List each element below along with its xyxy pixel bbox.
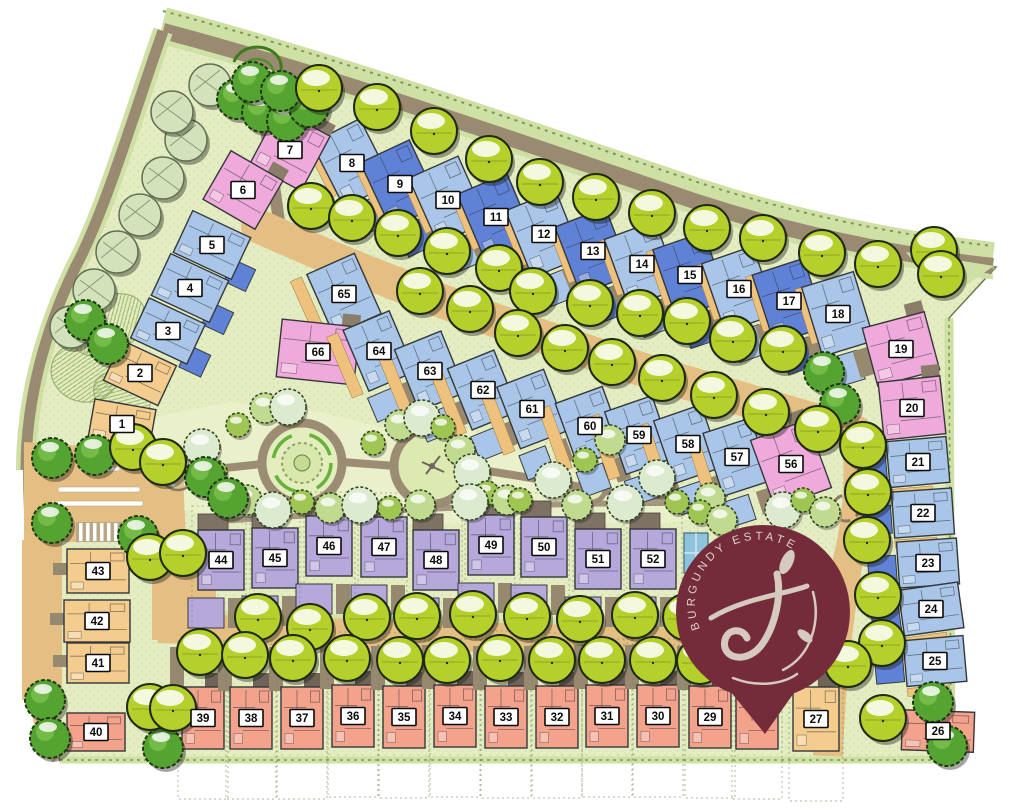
unit-number-43: 43 <box>86 563 110 580</box>
unit-number-17: 17 <box>777 293 801 310</box>
unit-number-65: 65 <box>332 286 356 303</box>
unit-number-30: 30 <box>646 708 670 725</box>
unit-number-27: 27 <box>804 711 828 728</box>
unit-number-14: 14 <box>630 256 654 273</box>
unit-number-35: 35 <box>392 709 416 726</box>
svg-text:14: 14 <box>636 259 649 271</box>
unit-number-36: 36 <box>341 708 365 725</box>
svg-text:33: 33 <box>500 712 513 724</box>
unit-number-21: 21 <box>906 454 930 471</box>
unit-number-16: 16 <box>727 281 751 298</box>
svg-text:38: 38 <box>245 713 258 725</box>
unit-number-31: 31 <box>595 708 619 725</box>
svg-text:30: 30 <box>652 711 665 723</box>
svg-text:18: 18 <box>832 309 845 321</box>
svg-text:52: 52 <box>647 554 660 566</box>
unit-number-7: 7 <box>278 142 302 159</box>
svg-text:47: 47 <box>378 542 391 554</box>
svg-text:57: 57 <box>731 452 744 464</box>
svg-text:29: 29 <box>704 712 717 724</box>
unit-number-1: 1 <box>110 416 134 433</box>
unit-number-11: 11 <box>484 209 508 226</box>
unit-number-34: 34 <box>443 708 467 725</box>
svg-text:64: 64 <box>373 346 386 358</box>
svg-text:6: 6 <box>240 185 246 197</box>
svg-text:39: 39 <box>197 713 210 725</box>
svg-text:10: 10 <box>442 195 455 207</box>
svg-text:13: 13 <box>587 246 600 258</box>
unit-number-5: 5 <box>200 237 224 254</box>
svg-text:12: 12 <box>538 229 551 241</box>
svg-text:15: 15 <box>684 270 697 282</box>
svg-text:36: 36 <box>347 711 360 723</box>
svg-text:26: 26 <box>932 726 945 738</box>
unit-number-6: 6 <box>231 182 255 199</box>
svg-text:32: 32 <box>551 712 564 724</box>
svg-text:40: 40 <box>90 727 103 739</box>
svg-text:46: 46 <box>323 541 336 553</box>
unit-number-19: 19 <box>889 341 913 358</box>
svg-text:42: 42 <box>91 616 104 628</box>
site-plan: 8910111213141516171876543216566646362616… <box>0 0 1013 810</box>
svg-text:34: 34 <box>449 711 462 723</box>
unit-number-56: 56 <box>779 456 803 473</box>
unit-number-12: 12 <box>532 226 556 243</box>
unit-number-8: 8 <box>340 155 364 172</box>
unit-number-32: 32 <box>545 709 569 726</box>
unit-number-13: 13 <box>581 243 605 260</box>
unit-number-42: 42 <box>85 613 109 630</box>
unit-number-9: 9 <box>388 176 412 193</box>
unit-number-66: 66 <box>306 344 330 361</box>
unit-number-38: 38 <box>239 710 263 727</box>
unit-number-26: 26 <box>926 723 950 740</box>
unit-number-61: 61 <box>520 401 544 418</box>
unit-number-60: 60 <box>578 418 602 435</box>
unit-number-22: 22 <box>911 505 935 522</box>
svg-text:56: 56 <box>785 459 798 471</box>
svg-text:44: 44 <box>215 555 228 567</box>
road-marking <box>55 501 143 506</box>
svg-text:17: 17 <box>783 296 796 308</box>
logo-pin-circle <box>676 525 850 699</box>
unit-number-10: 10 <box>436 192 460 209</box>
unit-number-49: 49 <box>479 537 503 554</box>
svg-text:3: 3 <box>165 326 171 338</box>
unit-number-24: 24 <box>919 601 943 618</box>
road-marking <box>58 487 140 492</box>
svg-text:37: 37 <box>296 713 309 725</box>
site-plan-svg: 8910111213141516171876543216566646362616… <box>0 0 1013 810</box>
unit-number-2: 2 <box>128 365 152 382</box>
svg-text:60: 60 <box>584 421 597 433</box>
svg-text:49: 49 <box>485 540 498 552</box>
svg-text:23: 23 <box>922 558 935 570</box>
svg-text:31: 31 <box>601 711 614 723</box>
unit-number-58: 58 <box>676 436 700 453</box>
unit-number-51: 51 <box>586 551 610 568</box>
svg-text:5: 5 <box>209 240 216 252</box>
svg-text:62: 62 <box>477 385 490 397</box>
unit-number-48: 48 <box>424 552 448 569</box>
svg-text:43: 43 <box>92 566 105 578</box>
unit-number-18: 18 <box>826 306 850 323</box>
svg-text:25: 25 <box>929 656 942 668</box>
unit-number-29: 29 <box>698 709 722 726</box>
svg-text:1: 1 <box>119 419 126 431</box>
unit-number-40: 40 <box>84 724 108 741</box>
svg-text:21: 21 <box>912 457 925 469</box>
svg-text:8: 8 <box>349 158 356 170</box>
unit-number-64: 64 <box>367 343 391 360</box>
unit-number-33: 33 <box>494 709 518 726</box>
svg-text:50: 50 <box>538 542 551 554</box>
svg-text:11: 11 <box>490 212 503 224</box>
svg-text:48: 48 <box>430 555 443 567</box>
unit-number-3: 3 <box>156 323 180 340</box>
svg-text:22: 22 <box>917 508 930 520</box>
svg-text:51: 51 <box>592 554 605 566</box>
svg-text:7: 7 <box>287 145 293 157</box>
svg-text:41: 41 <box>92 658 105 670</box>
svg-text:27: 27 <box>810 714 823 726</box>
unit-number-59: 59 <box>627 427 651 444</box>
svg-text:35: 35 <box>398 712 411 724</box>
svg-text:4: 4 <box>187 283 194 295</box>
svg-text:58: 58 <box>682 439 695 451</box>
unit-number-23: 23 <box>916 555 940 572</box>
svg-text:59: 59 <box>633 430 646 442</box>
unit-number-52: 52 <box>641 551 665 568</box>
unit-number-44: 44 <box>209 552 233 569</box>
unit-number-47: 47 <box>372 539 396 556</box>
svg-text:24: 24 <box>925 604 938 616</box>
unit-number-63: 63 <box>418 363 442 380</box>
svg-text:2: 2 <box>137 368 143 380</box>
svg-text:66: 66 <box>312 347 325 359</box>
unit-number-46: 46 <box>317 538 341 555</box>
unit-number-45: 45 <box>263 550 287 567</box>
unit-number-20: 20 <box>900 400 924 417</box>
svg-text:16: 16 <box>733 284 746 296</box>
unit-number-15: 15 <box>678 267 702 284</box>
svg-text:20: 20 <box>906 403 919 415</box>
unit-number-50: 50 <box>532 539 556 556</box>
unit-number-25: 25 <box>923 653 947 670</box>
unit-number-37: 37 <box>290 710 314 727</box>
svg-text:63: 63 <box>424 366 437 378</box>
unit-number-41: 41 <box>86 655 110 672</box>
svg-text:61: 61 <box>526 404 539 416</box>
svg-text:65: 65 <box>338 289 351 301</box>
unit-number-57: 57 <box>725 449 749 466</box>
unit-number-4: 4 <box>178 280 202 297</box>
unit-number-39: 39 <box>191 710 215 727</box>
unit-number-62: 62 <box>471 382 495 399</box>
svg-text:45: 45 <box>269 553 282 565</box>
svg-text:9: 9 <box>397 179 403 191</box>
svg-text:19: 19 <box>895 344 908 356</box>
